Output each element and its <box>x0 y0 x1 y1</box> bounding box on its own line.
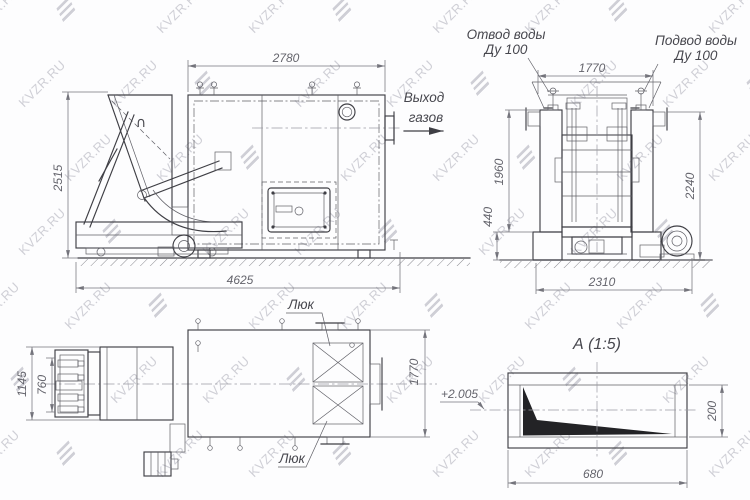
plan-view: Люк Люк 1145 760 1770 <box>15 297 437 476</box>
dim-text-440: 440 <box>481 207 495 227</box>
dim-text-760: 760 <box>35 375 49 395</box>
blower-motor-plan <box>144 424 185 476</box>
dim-text-2310: 2310 <box>588 275 616 289</box>
dim-text-680: 680 <box>583 467 603 481</box>
dim-760: 760 <box>35 358 55 412</box>
blower-fan <box>640 226 694 260</box>
dim-text-1960: 1960 <box>492 158 506 185</box>
hatch-label-bottom: Люк <box>278 451 305 466</box>
water-outlet-label-line1: Отвод воды <box>467 27 546 42</box>
detail-a-title: А (1:5) <box>572 336 621 353</box>
dim-2240: 2240 <box>667 112 712 260</box>
hopper-mark: ∩ <box>136 115 146 131</box>
water-outlet-label-line2: Ду 100 <box>483 42 528 57</box>
drawing-canvas: KVZR.RUKVZR.RUKVZR.RUKVZR.RUKVZR.RUKVZR.… <box>0 0 750 500</box>
front-view: Отвод воды Ду 100 Подвод воды Ду 100 177… <box>467 27 737 294</box>
grate-wedge <box>523 387 672 436</box>
side-view: ∩ <box>51 51 470 293</box>
hopper-tipper-mechanism <box>84 112 231 235</box>
plan-bolt-fittings <box>196 319 361 451</box>
gas-exit-label-line2: газов <box>409 110 443 125</box>
dim-text-2515: 2515 <box>51 164 65 192</box>
pusher-module <box>55 347 173 420</box>
dim-2515: 2515 <box>51 92 108 258</box>
dim-1960: 1960 <box>492 110 540 232</box>
hopper-outline-behind <box>532 82 661 108</box>
hatch-callout-top: Люк <box>286 297 330 346</box>
feed-hopper: ∩ <box>108 95 172 225</box>
level-mark-text: +2.005 <box>441 387 478 401</box>
dim-text-2240: 2240 <box>683 172 697 200</box>
hatch-callout-bottom: Люк <box>278 421 327 467</box>
dim-1145: 1145 <box>15 347 100 420</box>
furnace-door <box>262 182 336 238</box>
dim-text-4625: 4625 <box>227 273 254 287</box>
dim-text-200: 200 <box>705 401 719 422</box>
dim-1770-plan: 1770 <box>370 330 430 437</box>
dim-text-1770-plan: 1770 <box>407 358 421 385</box>
side-columns <box>526 108 667 232</box>
hatch-boxes <box>313 343 363 424</box>
base-frame <box>76 222 242 257</box>
dim-1770-front: 1770 <box>538 61 653 106</box>
water-inlet-label-line1: Подвод воды <box>655 33 737 48</box>
dim-440: 440 <box>481 207 533 260</box>
dim-text-1770-front: 1770 <box>579 61 606 75</box>
technical-drawing: ∩ <box>0 0 750 500</box>
detail-a: А (1:5) +2.005 680 200 <box>440 336 728 488</box>
dim-text-2780: 2780 <box>272 51 300 65</box>
ground-line-front <box>500 260 712 268</box>
dim-2780: 2780 <box>188 51 385 92</box>
gas-exit-callout: Выход газов <box>404 90 445 131</box>
dim-680: 680 <box>508 450 687 488</box>
gas-exit-label-line1: Выход <box>404 90 445 105</box>
plan-flanges <box>316 323 382 444</box>
ground-line <box>78 258 470 266</box>
dim-200: 200 <box>689 385 728 437</box>
dim-text-1145: 1145 <box>15 371 29 397</box>
plan-body <box>188 330 370 437</box>
water-inlet-label-line2: Ду 100 <box>673 48 718 63</box>
level-mark-callout: +2.005 <box>440 387 484 409</box>
flange-port <box>339 104 355 120</box>
hatch-label-top: Люк <box>287 297 314 312</box>
